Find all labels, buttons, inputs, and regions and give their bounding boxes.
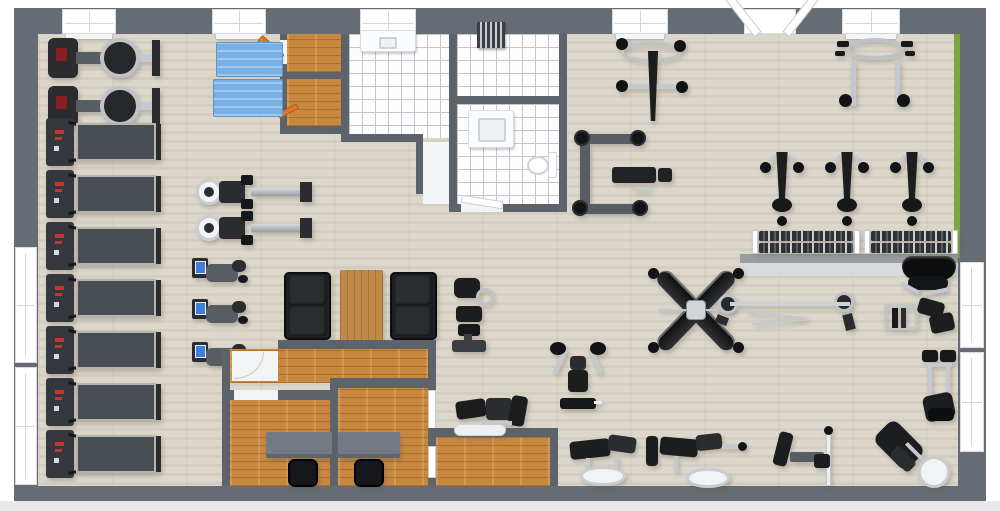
treadmill-part	[156, 280, 161, 316]
sofa-part	[290, 307, 326, 336]
leg-curl-machine-part	[695, 433, 723, 452]
treadmill	[46, 326, 164, 374]
corridor-floor	[423, 142, 449, 204]
treadmill	[46, 430, 164, 478]
cable-crossover-machine-part	[733, 342, 744, 353]
coffee-table	[340, 270, 383, 342]
rowing-machine-rail-part	[241, 175, 253, 185]
exercise-bike-part	[195, 302, 206, 315]
cable-column-machine-part	[907, 216, 917, 226]
hack-squat-machine	[920, 348, 960, 422]
window	[960, 262, 984, 348]
treadmill-part	[55, 130, 64, 134]
sofa	[284, 272, 331, 340]
exercise-bike-part	[195, 345, 206, 358]
adjustable-bench	[900, 256, 958, 294]
cable-column-machine-part	[777, 216, 787, 226]
rowing-machine-rail	[196, 212, 316, 244]
leg-curl-machine-part	[646, 436, 658, 466]
treadmill-part	[76, 279, 156, 317]
pec-fly-machine-part	[568, 370, 588, 392]
exercise-bike	[192, 255, 250, 289]
closet-wall	[287, 72, 348, 79]
preacher-curl-machine-part	[452, 340, 486, 352]
treadmill-part	[54, 354, 59, 359]
sink-vanity	[468, 110, 514, 148]
rowing-machine-flywheel-part	[56, 96, 67, 109]
window-sill	[216, 34, 262, 39]
pec-fly-machine-part	[570, 356, 586, 370]
barbell-on-stands-part	[842, 313, 856, 331]
treadmill	[46, 378, 164, 426]
exercise-bike-part	[238, 316, 248, 324]
bench-press-station-part	[630, 180, 654, 192]
office-wall	[550, 428, 558, 486]
treadmill-part	[76, 435, 156, 473]
treadmill-part	[55, 137, 62, 140]
sofa	[390, 272, 437, 340]
cable-column-machine-part	[825, 162, 836, 173]
treadmill-part	[55, 293, 62, 296]
treadmill	[46, 118, 164, 166]
bench-press-station-part	[632, 200, 648, 216]
barbell-on-stands-part	[730, 302, 850, 306]
treadmill-part	[54, 458, 59, 463]
cable-crossover-machine-part	[648, 342, 659, 353]
treadmill	[46, 222, 164, 270]
dumbbell-rack-part	[854, 230, 860, 254]
preacher-curl-machine-part	[456, 306, 482, 322]
leg-curl-machine-part	[686, 468, 730, 488]
lat-pulldown-machine-part	[674, 40, 686, 52]
lat-pulldown-machine	[616, 38, 688, 122]
dumbbell-rack-part	[759, 243, 853, 253]
treadmill-part	[55, 345, 62, 348]
sink-vanity	[360, 30, 416, 52]
exercise-mat	[216, 42, 283, 77]
treadmill-part	[55, 234, 64, 238]
window	[15, 367, 37, 485]
window	[612, 9, 668, 34]
bench-press-station	[572, 128, 680, 220]
pullup-dip-station-part	[835, 51, 845, 56]
treadmill-part	[76, 175, 156, 213]
preacher-curl-machine-part	[476, 288, 494, 306]
rowing-machine-flywheel	[48, 36, 160, 80]
treadmill-part	[156, 228, 161, 264]
treadmill-part	[76, 227, 156, 265]
sidewalk	[0, 501, 1000, 511]
rowing-machine-rail-part	[204, 187, 214, 197]
sofa-part	[395, 307, 431, 336]
pullup-dip-station-part	[901, 41, 913, 47]
treadmill-part	[55, 189, 62, 192]
hack-squat-machine-part	[928, 367, 932, 397]
leg-press-machine	[874, 422, 958, 490]
treadmill-part	[156, 124, 161, 160]
pullup-dip-station-part	[905, 51, 915, 56]
lat-pulldown-machine-part	[676, 81, 688, 93]
rowing-machine-rail	[196, 176, 316, 208]
hack-squat-machine-part	[922, 350, 938, 362]
treadmill-part	[55, 449, 62, 452]
pec-fly-machine-part	[594, 401, 602, 404]
treadmill-part	[55, 241, 62, 244]
dumbbell-rack-part	[871, 243, 951, 253]
office-door	[428, 390, 436, 430]
cable-column-machine-part	[772, 198, 792, 212]
interior-wall	[341, 134, 423, 142]
exercise-bike-part	[232, 260, 246, 272]
leg-press-machine-part	[918, 456, 950, 488]
pullup-dip-station-part	[839, 94, 852, 107]
cable-column-machine-part	[902, 198, 922, 212]
gym-floor-plan	[0, 0, 1000, 511]
lat-pulldown-machine-part	[616, 80, 628, 92]
treadmill-part	[76, 331, 156, 369]
cable-column-machine	[825, 146, 869, 226]
office-chair	[288, 459, 318, 487]
leg-curl-machine-part	[659, 436, 698, 457]
pec-fly-machine-part	[590, 342, 606, 355]
rowing-machine-rail-part	[300, 218, 312, 238]
office-wall	[278, 340, 436, 349]
plate-loaded-machine	[884, 298, 958, 338]
bench-press-station-part	[630, 130, 646, 146]
treadmill-part	[55, 338, 64, 342]
barbell-on-stands-part	[746, 310, 806, 319]
rowing-machine-rail-part	[300, 182, 312, 202]
dumbbell-rack-part	[952, 230, 958, 254]
calf-raise-machine-part	[814, 454, 830, 468]
treadmill-part	[54, 406, 59, 411]
treadmill-part	[54, 198, 59, 203]
treadmill-part	[156, 436, 161, 472]
pullup-dip-station-part	[846, 38, 904, 60]
leg-curl-machine	[566, 434, 644, 486]
leg-extension-machine-part	[455, 398, 487, 420]
leg-curl-machine-part	[738, 442, 747, 451]
closet-1-floor	[287, 34, 341, 72]
pec-fly-machine	[550, 342, 606, 412]
pullup-dip-station-part	[897, 94, 910, 107]
exercise-bike-part	[232, 301, 246, 313]
interior-wall	[559, 34, 567, 212]
preacher-curl-machine	[450, 276, 494, 358]
rowing-machine-rail-part	[251, 188, 303, 196]
cable-column-machine-part	[890, 162, 901, 173]
towel-shelf	[477, 22, 505, 48]
interior-wall	[457, 96, 567, 104]
cable-column-machine-part	[774, 152, 790, 200]
rowing-machine-rail-part	[241, 211, 253, 221]
cable-column-machine-part	[842, 216, 852, 226]
office-desk	[338, 432, 400, 458]
leg-curl-machine-part	[607, 434, 637, 454]
office-desk	[266, 432, 332, 458]
treadmill-part	[54, 302, 59, 307]
cable-crossover-machine-part	[733, 268, 744, 279]
back-room-floor	[436, 437, 550, 486]
calf-raise-machine	[772, 426, 838, 490]
treadmill-part	[156, 332, 161, 368]
cable-crossover-machine-part	[686, 300, 706, 320]
rowing-machine-rail-part	[251, 224, 303, 232]
sofa-part	[290, 276, 326, 305]
barbell-on-stands-part	[752, 319, 808, 326]
toilet-tank	[548, 152, 557, 178]
shower-room-right-floor	[457, 34, 559, 96]
barbell-on-stands	[716, 290, 862, 338]
treadmill-part	[55, 397, 62, 400]
exercise-bike-part	[238, 275, 248, 283]
cable-column-machine-part	[923, 162, 934, 173]
cable-column-machine	[890, 146, 934, 226]
leg-extension-machine	[452, 396, 538, 438]
exercise-bike	[192, 296, 250, 330]
treadmill-part	[55, 390, 64, 394]
leg-curl-machine-part	[580, 466, 626, 486]
plate-loaded-machine-part	[928, 312, 955, 335]
dumbbell-rack	[752, 230, 860, 254]
window	[842, 9, 900, 34]
dumbbell-rack-part	[871, 231, 951, 241]
cable-column-machine-part	[793, 162, 804, 173]
sofa-part	[395, 276, 431, 305]
treadmill-part	[55, 286, 64, 290]
pec-fly-machine-part	[550, 342, 566, 355]
green-accent-wall	[954, 34, 960, 258]
calf-raise-machine-part	[824, 426, 833, 435]
hack-squat-machine-part	[928, 408, 954, 421]
lat-pulldown-machine-part	[616, 38, 628, 50]
window	[62, 9, 116, 34]
treadmill-part	[156, 384, 161, 420]
bench-press-station-part	[572, 200, 588, 216]
cable-column-machine-part	[904, 152, 920, 200]
rowing-machine-flywheel-part	[152, 40, 160, 76]
cable-crossover-machine-part	[648, 268, 659, 279]
treadmill-part	[55, 442, 64, 446]
rowing-machine-flywheel-part	[100, 38, 140, 78]
dumbbell-rack-part	[864, 230, 870, 254]
interior-wall	[416, 142, 423, 194]
leg-extension-machine-part	[482, 421, 512, 425]
hack-squat-machine-part	[940, 350, 956, 362]
rowing-machine-rail-part	[241, 199, 253, 209]
treadmill	[46, 170, 164, 218]
bench-press-station-part	[658, 168, 672, 182]
treadmill-part	[55, 182, 64, 186]
window	[15, 247, 37, 363]
cable-column-machine-part	[837, 198, 857, 212]
treadmill-part	[156, 176, 161, 212]
treadmill-part	[54, 250, 59, 255]
toilet	[527, 156, 549, 175]
cable-column-machine	[760, 146, 804, 226]
office-door-gap	[234, 390, 278, 400]
leg-curl-machine-part	[569, 438, 611, 460]
pullup-dip-station-part	[837, 41, 849, 47]
office-door	[428, 446, 436, 478]
interior-wall	[341, 34, 349, 134]
treadmill-part	[54, 146, 59, 151]
treadmill-part	[76, 123, 156, 161]
exercise-bike-part	[195, 261, 206, 274]
wall-bottom	[14, 486, 986, 501]
treadmill	[46, 274, 164, 322]
leg-curl-machine	[646, 432, 742, 488]
rowing-machine-rail-part	[241, 235, 253, 245]
dumbbell-rack-part	[752, 230, 758, 254]
pullup-dip-station	[834, 36, 916, 110]
dumbbell-rack-part	[759, 231, 853, 241]
interior-wall	[449, 34, 457, 212]
sink-basin	[379, 37, 397, 49]
pec-fly-machine-part	[560, 398, 596, 409]
rowing-machine-flywheel-part	[56, 48, 67, 61]
barbell-on-stands-part	[715, 314, 729, 326]
office-wall	[222, 349, 230, 486]
plate-loaded-machine-part	[901, 308, 906, 328]
cable-column-machine-part	[858, 162, 869, 173]
cable-column-machine-part	[839, 152, 855, 200]
leg-curl-machine-part	[674, 456, 678, 472]
dumbbell-rack	[864, 230, 958, 254]
office-wall	[278, 390, 330, 400]
office-chair	[354, 459, 384, 487]
plate-loaded-machine-part	[892, 308, 898, 328]
window	[212, 9, 266, 34]
office-wall	[222, 390, 234, 400]
cable-column-machine-part	[760, 162, 771, 173]
office-wall	[330, 378, 436, 388]
bench-press-station-part	[574, 130, 590, 146]
treadmill-part	[76, 383, 156, 421]
leg-extension-machine-part	[454, 424, 506, 436]
exercise-mat	[213, 79, 283, 117]
sink-basin	[478, 118, 506, 142]
window	[960, 352, 984, 452]
rowing-machine-rail-part	[204, 223, 214, 233]
